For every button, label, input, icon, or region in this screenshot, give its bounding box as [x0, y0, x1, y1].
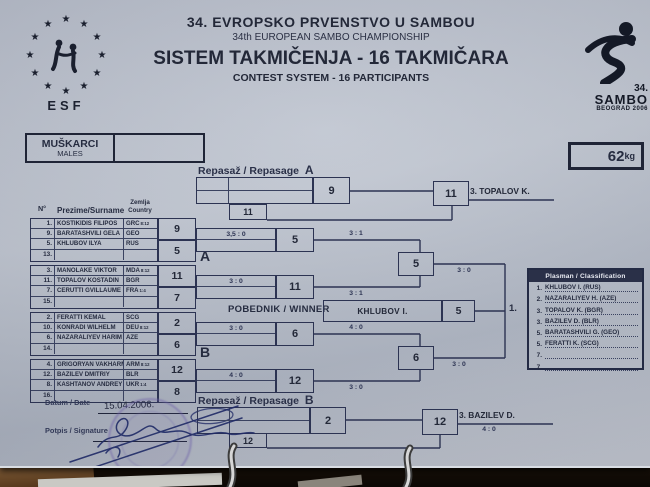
third-place-a: 3. TOPALOV K. — [470, 186, 530, 196]
table-row: 15. — [31, 297, 157, 307]
repasage-b-final-box: 12 — [422, 409, 458, 435]
final-score-b-side: 3 : 0 — [441, 361, 477, 368]
classification-row: 1.KHLUBOV I. (RUS) — [529, 282, 642, 293]
country-header-en: Country — [122, 207, 158, 215]
quarterfinal-a2-winner: 11 — [276, 275, 314, 299]
table-row: 7.CERUTTI GVILLAUMEFRA1:4 — [31, 286, 157, 296]
bracket-sheet: ★★★ ★★★ ★★★ ★★★ ESF 34. EVROPSKO PRVENST… — [0, 0, 650, 468]
round1-winner-box: 2 — [158, 312, 196, 334]
table-row: 5.KHLUBOV ILYARUS — [31, 239, 157, 249]
table-row: 8.KASHTANOV ANDREYUKR1:4 — [31, 380, 157, 390]
tournament-sheet-photo: ★★★ ★★★ ★★★ ★★★ ESF 34. EVROPSKO PRVENST… — [0, 0, 650, 487]
repasage-a-entrant-box: 11 — [229, 204, 267, 220]
table-row: 3.MANOLAKE VIKTORMDA8:12 — [31, 266, 157, 276]
winner-number-box: 5 — [442, 300, 475, 322]
quarterfinal-b2-winner: 12 — [276, 369, 314, 393]
repasage-a-text: Repasaž / Repasage — [198, 165, 299, 177]
table-row: 9.BARATASHVILI GELAGEO — [31, 229, 157, 239]
classification-row: 3.BAZILEV D. (BLR) — [529, 316, 642, 327]
classification-row: 2.NAZARALIYEV H. (AZE) — [529, 293, 642, 304]
pool-table-b1: 2.FERATTI KEMALSCG 10.KONRADI WILHELMDEU… — [30, 312, 158, 356]
semifinal-b-score-bottom: 3 : 0 — [338, 384, 374, 391]
repasage-a-pair-box — [196, 177, 313, 204]
repasage-b-winner-box: 2 — [310, 407, 346, 434]
first-place-label: 1. — [509, 303, 517, 314]
repasage-a-label: Repasaž / Repasage A — [198, 163, 313, 177]
winner-name-box: KHLUBOV I. — [323, 300, 442, 322]
table-row: 14. — [31, 344, 157, 354]
table-row: 4.GRIGORYAN VAKHARMARM8:12 — [31, 360, 157, 370]
classification-box: Plasman / Classification 1.KHLUBOV I. (R… — [527, 268, 644, 370]
third-place-b: 3. BAZILEV D. — [459, 410, 515, 420]
quarterfinal-b2: 4 : 0 — [196, 369, 276, 393]
quarterfinal-b1: 3 : 0 — [196, 322, 276, 346]
round1-winner-box: 9 — [158, 218, 196, 240]
quarterfinal-a1-winner: 5 — [276, 228, 314, 252]
table-row: 12.BAZILEV DMITRIYBLR — [31, 370, 157, 380]
column-header-country: Zemlja Country — [122, 199, 158, 214]
round1-winner-box: 5 — [158, 240, 196, 262]
group-b-label: B — [200, 344, 210, 360]
round1-winner-box: 7 — [158, 287, 196, 309]
table-row: 1.KOSTIKIDIS FILIPOSGRC8:12 — [31, 219, 157, 229]
repasage-b-letter: B — [305, 393, 314, 407]
quarterfinal-a1: 3,5 : 0 — [196, 228, 276, 252]
column-header-surname: Prezime/Surname — [57, 206, 124, 215]
classification-row: 7. — [529, 360, 642, 371]
semifinal-a-score-bottom: 3 : 1 — [338, 290, 374, 297]
classification-row: 7. — [529, 349, 642, 360]
round1-winner-box: 11 — [158, 265, 196, 287]
final-score-a-side: 3 : 0 — [446, 267, 482, 274]
table-row: 13. — [31, 250, 157, 260]
binder-ring-icons — [0, 440, 650, 487]
semifinal-a-score-top: 3 : 1 — [338, 230, 374, 237]
repasage-b-final-score: 4 : 0 — [474, 426, 504, 433]
quarterfinal-a2: 3 : 0 — [196, 275, 276, 299]
repasage-a-winner-box: 9 — [313, 177, 350, 204]
table-row: 10.KONRADI WILHELMDEU8:12 — [31, 323, 157, 333]
semifinal-b-score-top: 4 : 0 — [338, 324, 374, 331]
pool-table-a1: 1.KOSTIKIDIS FILIPOSGRC8:12 9.BARATASHVI… — [30, 218, 158, 262]
table-row: 11.TOPALOV KOSTADINBGR — [31, 276, 157, 286]
semifinal-a-winner: 5 — [398, 252, 434, 276]
winner-label: POBEDNIK / WINNER — [228, 304, 330, 315]
table-row: 2.FERATTI KEMALSCG — [31, 313, 157, 323]
column-header-number: N° — [30, 204, 54, 213]
classification-row: 5.FERATTI K. (SCG) — [529, 338, 642, 349]
classification-row: 3.TOPALOV K. (BGR) — [529, 304, 642, 315]
country-header-sr: Zemlja — [122, 199, 158, 207]
semifinal-b-winner: 6 — [398, 346, 434, 370]
repasage-a-letter: A — [305, 163, 314, 177]
repasage-a-final-box: 11 — [433, 181, 469, 206]
table-row: 6.NAZARALIYEV HARIMAZE — [31, 333, 157, 343]
round1-winner-box: 6 — [158, 334, 196, 356]
round1-winner-box: 12 — [158, 359, 196, 381]
pool-table-a2: 3.MANOLAKE VIKTORMDA8:12 11.TOPALOV KOST… — [30, 265, 158, 309]
classification-title: Plasman / Classification — [529, 270, 642, 282]
quarterfinal-b1-winner: 6 — [276, 322, 314, 346]
classification-row: 5.BARATASHVILI G. (GEO) — [529, 327, 642, 338]
